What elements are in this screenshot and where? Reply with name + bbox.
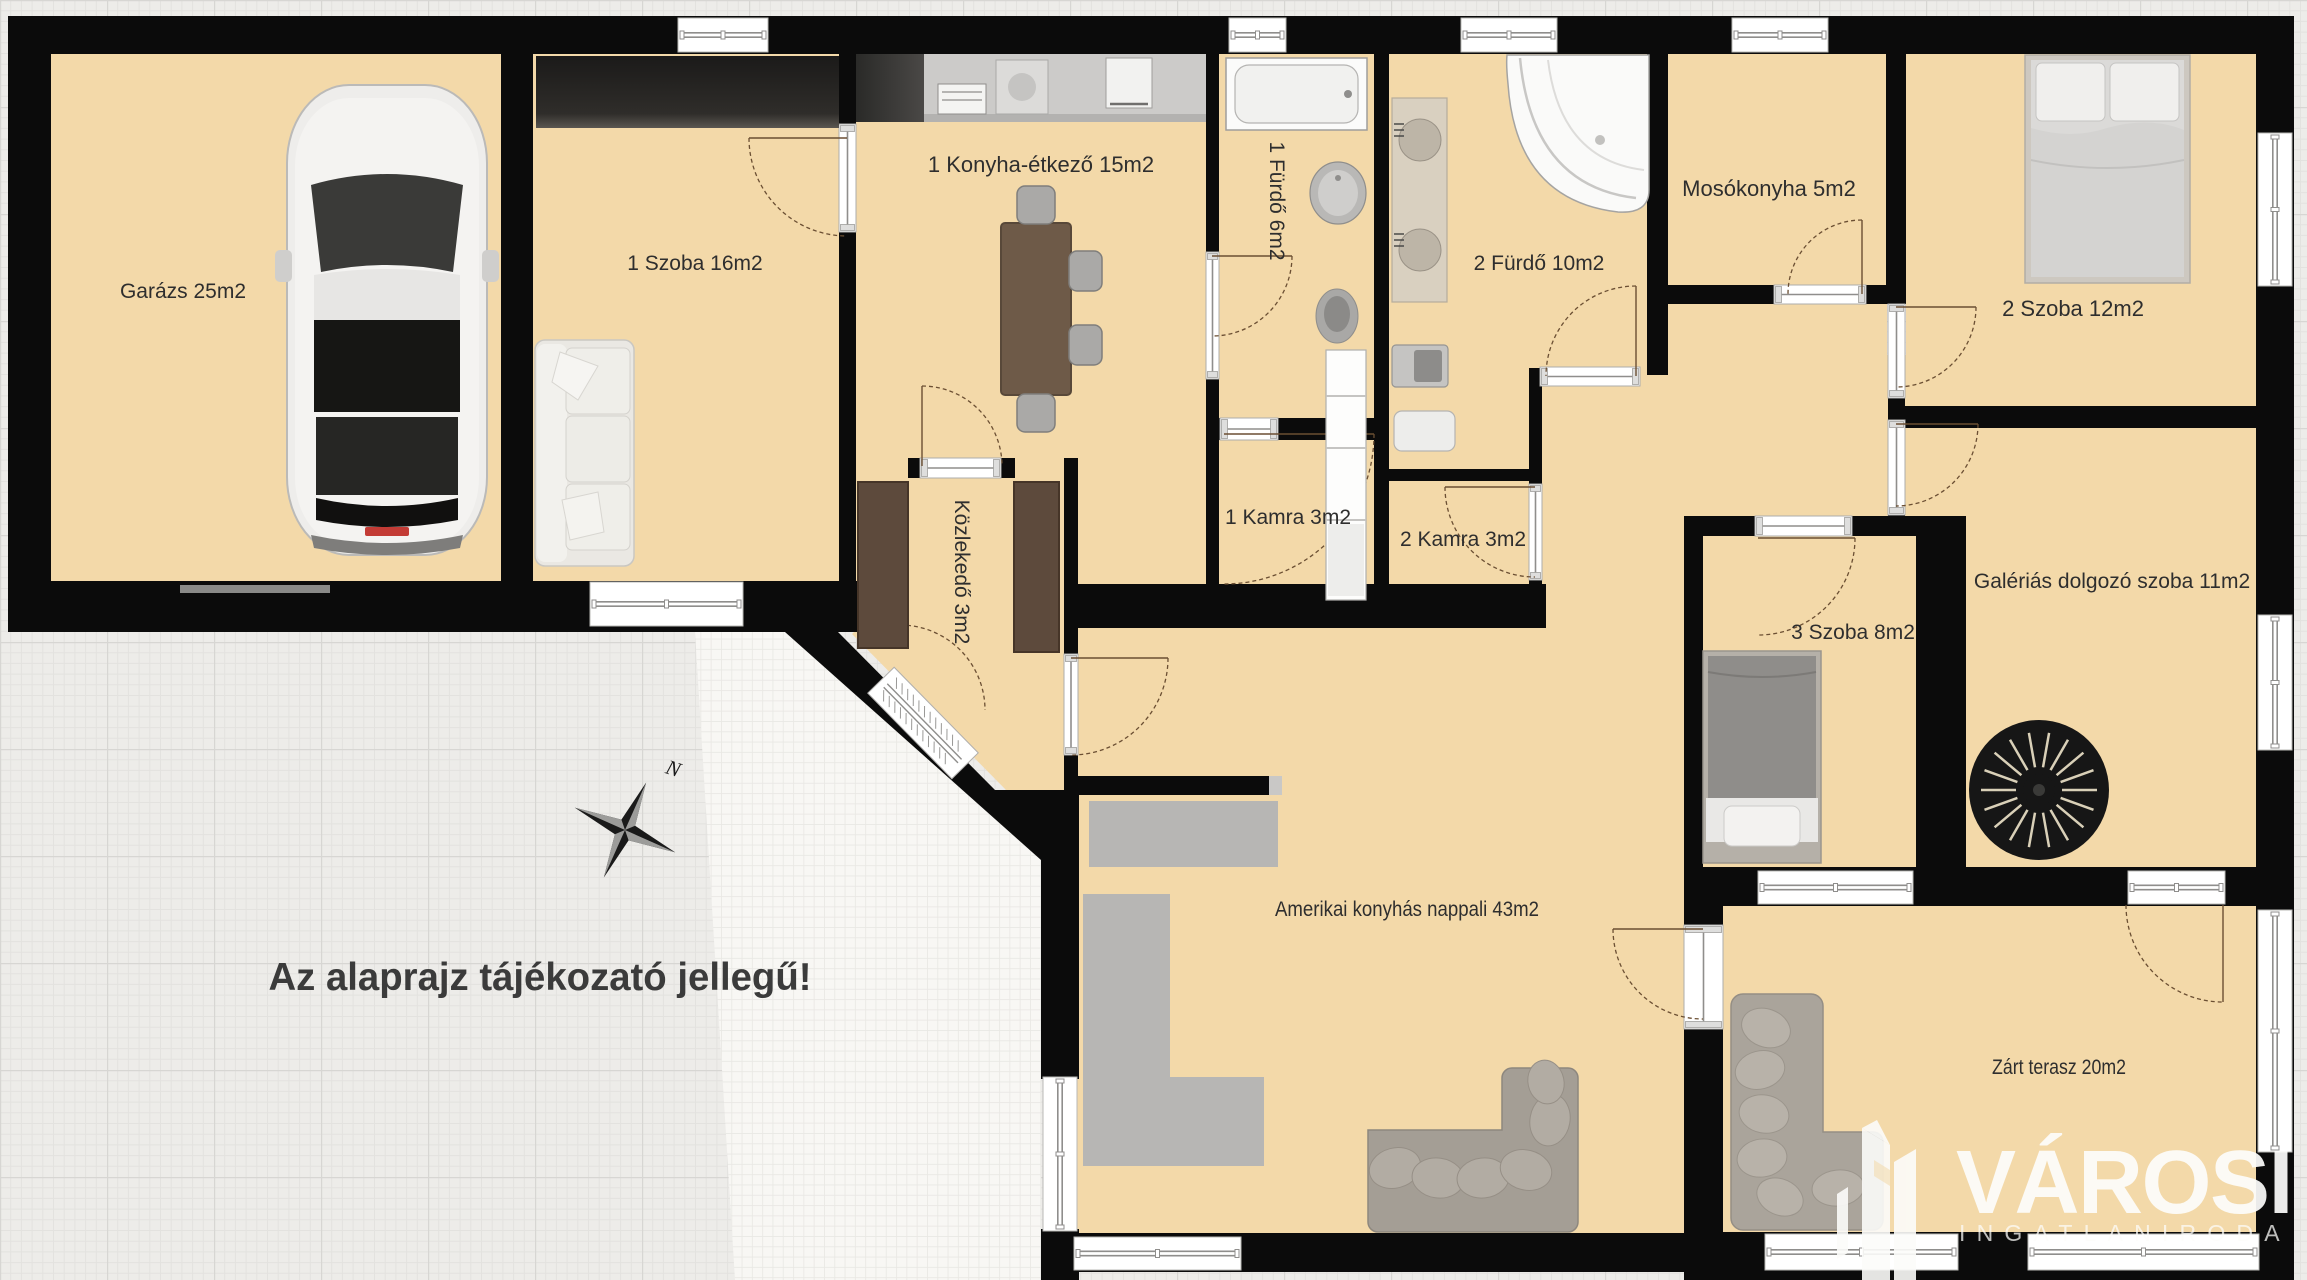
- svg-text:VÁROSI: VÁROSI: [1956, 1132, 2292, 1233]
- svg-text:Közlekedő 3m2: Közlekedő 3m2: [950, 500, 973, 645]
- svg-text:1 Kamra 3m2: 1 Kamra 3m2: [1225, 506, 1351, 529]
- svg-text:Mosókonyha 5m2: Mosókonyha 5m2: [1682, 176, 1856, 201]
- svg-text:Galériás dolgozó szoba 11m2: Galériás dolgozó szoba 11m2: [1974, 570, 2250, 593]
- svg-text:3 Szoba 8m2: 3 Szoba 8m2: [1791, 621, 1915, 644]
- svg-text:2 Szoba 12m2: 2 Szoba 12m2: [2002, 296, 2144, 321]
- svg-text:Amerikai konyhás nappali 43m2: Amerikai konyhás nappali 43m2: [1275, 898, 1539, 921]
- svg-text:Az alaprajz tájékozató jellegű: Az alaprajz tájékozató jellegű!: [269, 956, 812, 999]
- svg-text:Zárt terasz 20m2: Zárt terasz 20m2: [1992, 1056, 2126, 1079]
- svg-text:1 Szoba 16m2: 1 Szoba 16m2: [627, 252, 762, 275]
- svg-text:INGATLANIRODA: INGATLANIRODA: [1959, 1220, 2291, 1246]
- svg-text:2 Kamra 3m2: 2 Kamra 3m2: [1400, 528, 1526, 551]
- svg-text:Garázs 25m2: Garázs 25m2: [120, 280, 246, 303]
- svg-text:2 Fürdő 10m2: 2 Fürdő 10m2: [1474, 252, 1605, 275]
- svg-text:1 Konyha-étkező 15m2: 1 Konyha-étkező 15m2: [928, 152, 1154, 177]
- svg-text:1 Fürdő 6m2: 1 Fürdő 6m2: [1265, 141, 1288, 260]
